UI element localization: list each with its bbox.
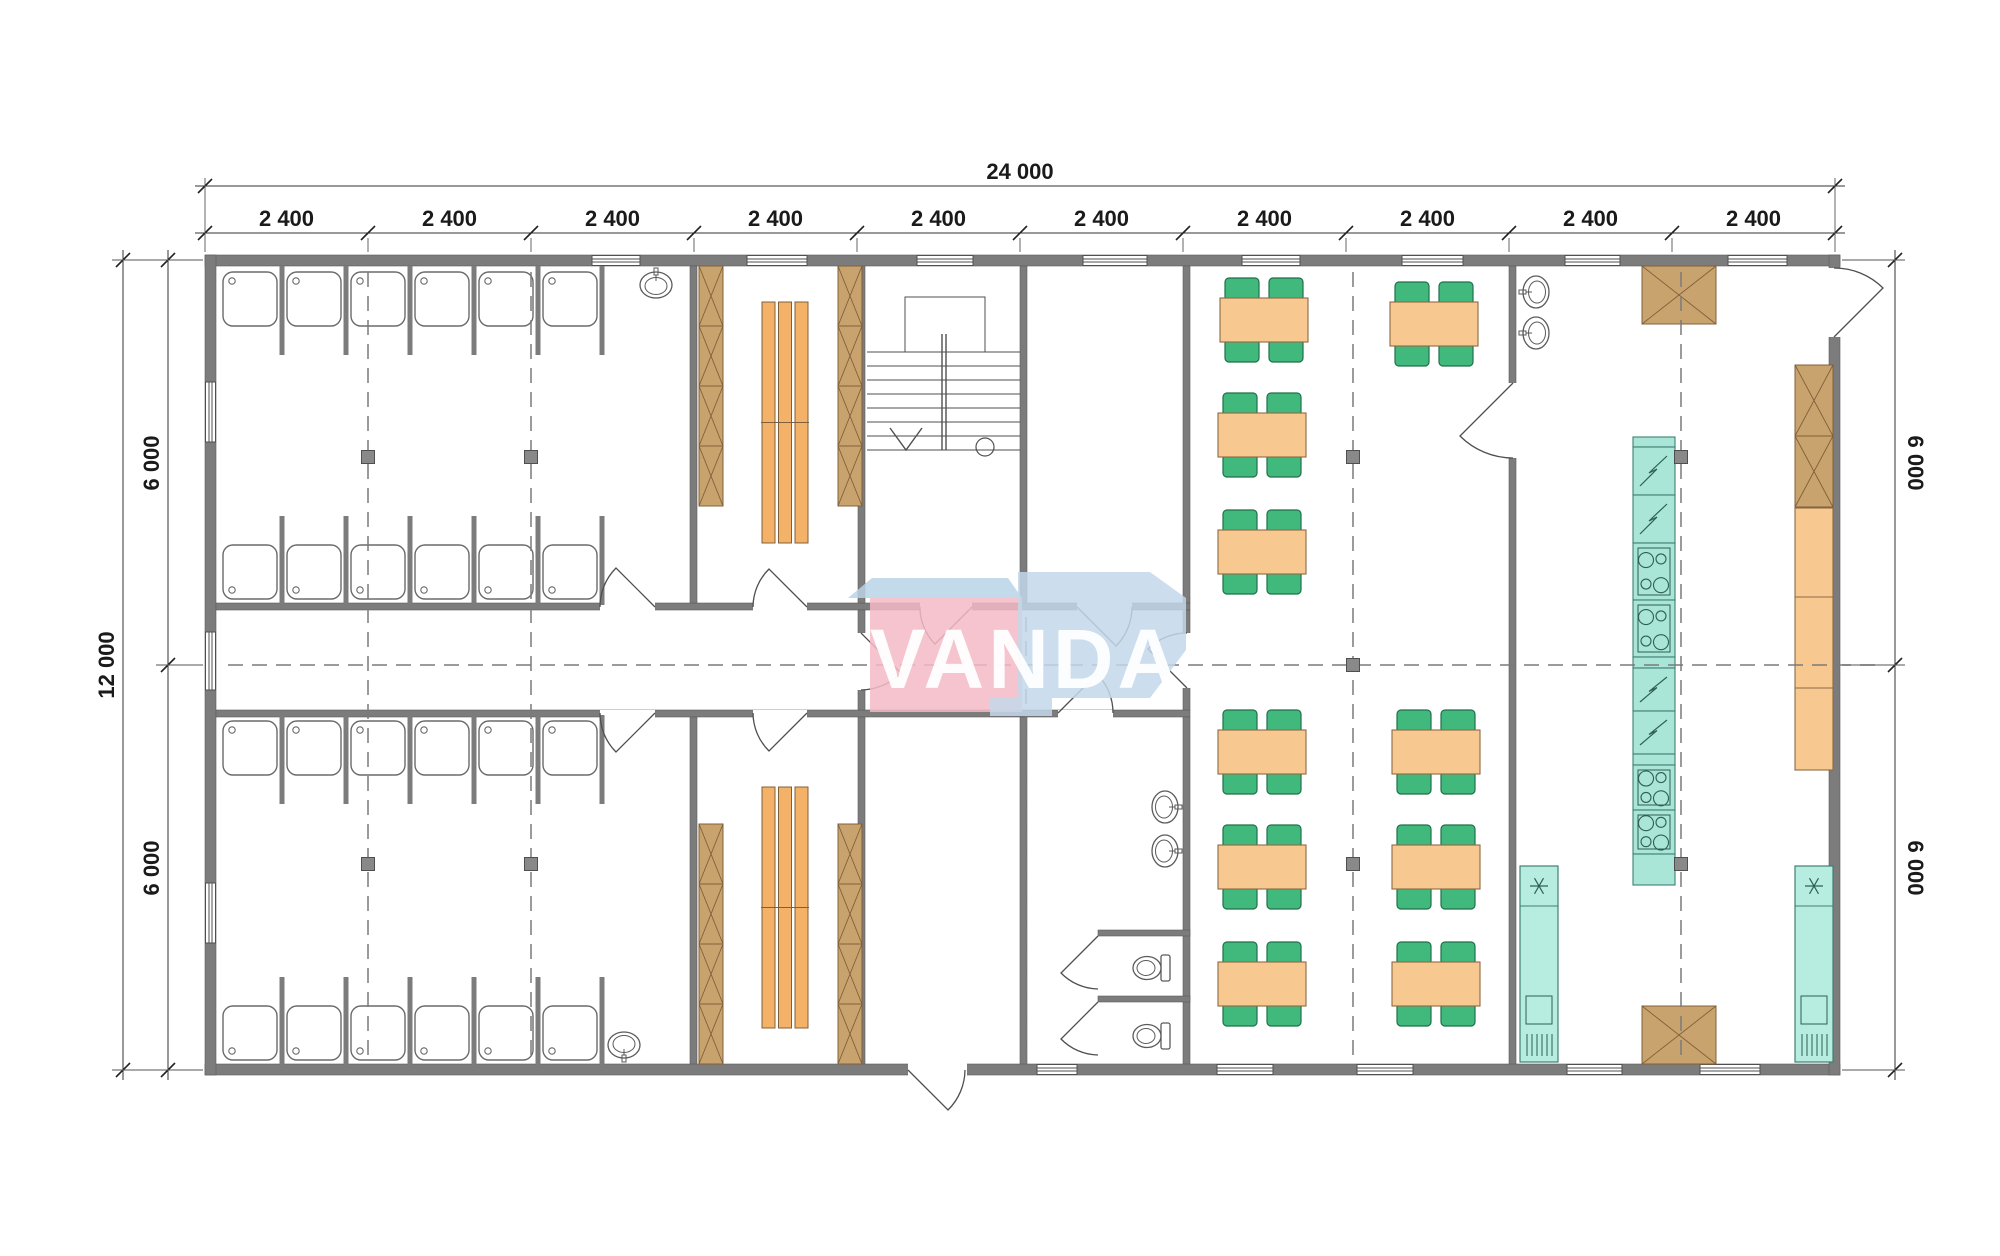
- stair-down-arrow-icon: [890, 428, 922, 450]
- stove-icon: [1633, 543, 1675, 600]
- door-swing-icon: [1834, 268, 1883, 337]
- table-icon: [1218, 530, 1306, 574]
- stall-partition: [472, 266, 477, 355]
- stair-landing: [905, 297, 985, 352]
- dim-label: 2 400: [911, 206, 966, 231]
- dim-label: 2 400: [748, 206, 803, 231]
- wall-opening: [1828, 268, 1841, 337]
- toilet-icon: [1133, 1023, 1170, 1049]
- stall-partition: [536, 516, 541, 605]
- dim-label: 2 400: [422, 206, 477, 231]
- dim-label: 6 000: [1903, 840, 1928, 895]
- wall-opening: [600, 710, 655, 718]
- watermark-top-face: [848, 578, 1022, 598]
- wash-basin-icon: [1152, 791, 1182, 823]
- stall-partition: [344, 516, 349, 605]
- counter-section: [1633, 437, 1675, 447]
- shower-stall: [287, 1006, 341, 1060]
- dim-label: 2 400: [585, 206, 640, 231]
- stair-post-icon: [976, 438, 994, 456]
- stall-partition: [600, 977, 605, 1066]
- electric-unit-icon: [1633, 495, 1675, 543]
- wall-opening: [1508, 383, 1517, 458]
- dining-table-group: [1392, 825, 1480, 909]
- shower-stall: [351, 1006, 405, 1060]
- shower-stall: [415, 545, 469, 599]
- stove-icon: [1633, 600, 1675, 657]
- door-swing-icon: [1460, 383, 1513, 458]
- shower-stall: [543, 1006, 597, 1060]
- shower-stall: [543, 272, 597, 326]
- shower-stall: [223, 545, 277, 599]
- stall-partition: [408, 977, 413, 1066]
- stall-partition: [600, 266, 605, 355]
- counter-section: [1633, 657, 1675, 668]
- window-icon: [1402, 256, 1463, 266]
- kitchen-counter: [1795, 508, 1833, 770]
- window-icon: [1565, 256, 1620, 266]
- dining-table-group: [1218, 393, 1306, 477]
- locker-cabinet: [699, 266, 723, 506]
- shower-stall: [223, 272, 277, 326]
- shower-stall: [415, 721, 469, 775]
- shower-stall: [287, 272, 341, 326]
- fridge-freezer-icon: [1520, 866, 1558, 1062]
- shower-stall: [415, 272, 469, 326]
- dining-table-group: [1218, 710, 1306, 794]
- dim-total-width: 24 000: [986, 159, 1053, 184]
- column-marker: [1347, 451, 1360, 464]
- window-icon: [592, 256, 640, 266]
- window-icon: [1083, 256, 1147, 266]
- shower-stall: [351, 721, 405, 775]
- door-swing-icon: [600, 713, 655, 752]
- wall-segment: [1020, 266, 1027, 603]
- dim-label: 2 400: [259, 206, 314, 231]
- shower-stall: [543, 545, 597, 599]
- locker-cabinet: [838, 824, 862, 1064]
- column-marker: [1675, 858, 1688, 871]
- shower-stall: [479, 545, 533, 599]
- window-icon: [1357, 1065, 1413, 1075]
- wall-segment: [690, 266, 697, 603]
- window-icon: [1700, 1065, 1760, 1075]
- window-icon: [1037, 1065, 1077, 1075]
- dim-label: 6 000: [139, 435, 164, 490]
- window-icon: [206, 632, 216, 690]
- window-icon: [1242, 256, 1300, 266]
- shower-stall: [351, 272, 405, 326]
- wall-segment: [1183, 717, 1190, 1064]
- dining-table-group: [1218, 510, 1306, 594]
- column-marker: [525, 451, 538, 464]
- wall-segment: [1098, 996, 1190, 1002]
- column-marker: [362, 858, 375, 871]
- window-icon: [747, 256, 807, 266]
- table-icon: [1218, 413, 1306, 457]
- wash-basin-icon: [1519, 276, 1549, 308]
- door-swing-icon: [1061, 1002, 1098, 1055]
- counter-section: [1633, 754, 1675, 765]
- stall-partition: [536, 266, 541, 355]
- table-icon: [1220, 298, 1308, 342]
- stall-partition: [280, 715, 285, 804]
- column-marker: [525, 858, 538, 871]
- dim-label: 2 400: [1563, 206, 1618, 231]
- fridge-freezer-icon: [1795, 866, 1833, 1062]
- wall-segment: [690, 717, 697, 1064]
- door-swing-icon: [753, 713, 807, 751]
- column-marker: [1347, 659, 1360, 672]
- window-icon: [206, 382, 216, 442]
- shower-stall: [287, 545, 341, 599]
- locker-cabinet: [699, 824, 723, 1064]
- electric-unit-icon: [1633, 668, 1675, 711]
- stall-partition: [344, 266, 349, 355]
- window-icon: [1728, 256, 1787, 266]
- door-swing-icon: [753, 569, 807, 607]
- stall-partition: [472, 715, 477, 804]
- window-icon: [917, 256, 973, 266]
- table-icon: [1218, 845, 1306, 889]
- dining-table-group: [1218, 825, 1306, 909]
- window-icon: [1217, 1065, 1273, 1075]
- stall-partition: [408, 266, 413, 355]
- wall-opening: [600, 602, 655, 611]
- column-marker: [362, 451, 375, 464]
- toilet-icon: [1133, 955, 1170, 981]
- stall-partition: [280, 266, 285, 355]
- wash-basin-icon: [1152, 835, 1182, 867]
- wall-segment: [1098, 930, 1190, 936]
- shower-stall: [479, 272, 533, 326]
- stall-partition: [472, 516, 477, 605]
- dining-table-group: [1390, 282, 1478, 366]
- locker-cabinet: [1642, 266, 1716, 324]
- stall-partition: [408, 715, 413, 804]
- wash-basin-icon: [1519, 317, 1549, 349]
- door-swing-icon: [600, 568, 655, 607]
- dim-label: 2 400: [1074, 206, 1129, 231]
- stall-partition: [536, 977, 541, 1066]
- stall-partition: [536, 715, 541, 804]
- dining-table-group: [1392, 942, 1480, 1026]
- locker-cabinet: [1642, 1006, 1716, 1064]
- wall-opening: [753, 602, 807, 611]
- column-marker: [1347, 858, 1360, 871]
- wall-opening: [908, 1063, 967, 1076]
- door-swing-icon: [1061, 936, 1098, 989]
- wall-opening: [753, 710, 807, 718]
- stall-partition: [280, 516, 285, 605]
- bench: [761, 787, 809, 1028]
- shower-stall: [351, 545, 405, 599]
- floor-plan-canvas: VANDA 24 000 12 000 2 4002 4002 4002 400…: [0, 0, 2000, 1256]
- table-icon: [1392, 730, 1480, 774]
- wall-segment: [1183, 266, 1190, 603]
- dining-table-group: [1220, 278, 1308, 362]
- stove-icon: [1633, 810, 1675, 854]
- dining-table-group: [1392, 710, 1480, 794]
- shower-stall: [223, 721, 277, 775]
- electric-unit-icon: [1633, 447, 1675, 495]
- table-icon: [1392, 962, 1480, 1006]
- staircase: [867, 297, 1020, 456]
- shower-stall: [223, 1006, 277, 1060]
- window-icon: [1567, 1065, 1622, 1075]
- table-icon: [1218, 962, 1306, 1006]
- stall-partition: [344, 715, 349, 804]
- dim-total-height: 12 000: [94, 631, 119, 698]
- dim-label: 6 000: [1903, 435, 1928, 490]
- dim-label: 6 000: [139, 840, 164, 895]
- window-icon: [206, 883, 216, 943]
- locker-cabinet: [838, 266, 862, 506]
- shower-stall: [479, 1006, 533, 1060]
- stove-icon: [1633, 765, 1675, 810]
- shower-stall: [415, 1006, 469, 1060]
- shower-stall: [543, 721, 597, 775]
- counter-section: [1633, 854, 1675, 885]
- locker-cabinet: [1795, 365, 1833, 507]
- dining-table-group: [1218, 942, 1306, 1026]
- stall-partition: [344, 977, 349, 1066]
- column-marker: [1675, 451, 1688, 464]
- shower-stall: [479, 721, 533, 775]
- dim-label: 2 400: [1726, 206, 1781, 231]
- wash-basin-icon: [608, 1032, 640, 1062]
- stall-partition: [280, 977, 285, 1066]
- stall-partition: [472, 977, 477, 1066]
- shower-stall: [287, 721, 341, 775]
- electric-unit-icon: [1633, 711, 1675, 754]
- watermark-logo: VANDA: [848, 572, 1186, 716]
- wall-opening: [1058, 710, 1113, 718]
- table-icon: [1218, 730, 1306, 774]
- watermark-text: VANDA: [870, 612, 1182, 706]
- table-icon: [1390, 302, 1478, 346]
- stall-partition: [408, 516, 413, 605]
- wall-opening: [857, 633, 866, 690]
- bench: [761, 302, 809, 543]
- table-icon: [1392, 845, 1480, 889]
- floor-plan-page: VANDA 24 000 12 000 2 4002 4002 4002 400…: [0, 0, 2000, 1256]
- dim-label: 2 400: [1400, 206, 1455, 231]
- dim-label: 2 400: [1237, 206, 1292, 231]
- wash-basin-icon: [640, 268, 672, 298]
